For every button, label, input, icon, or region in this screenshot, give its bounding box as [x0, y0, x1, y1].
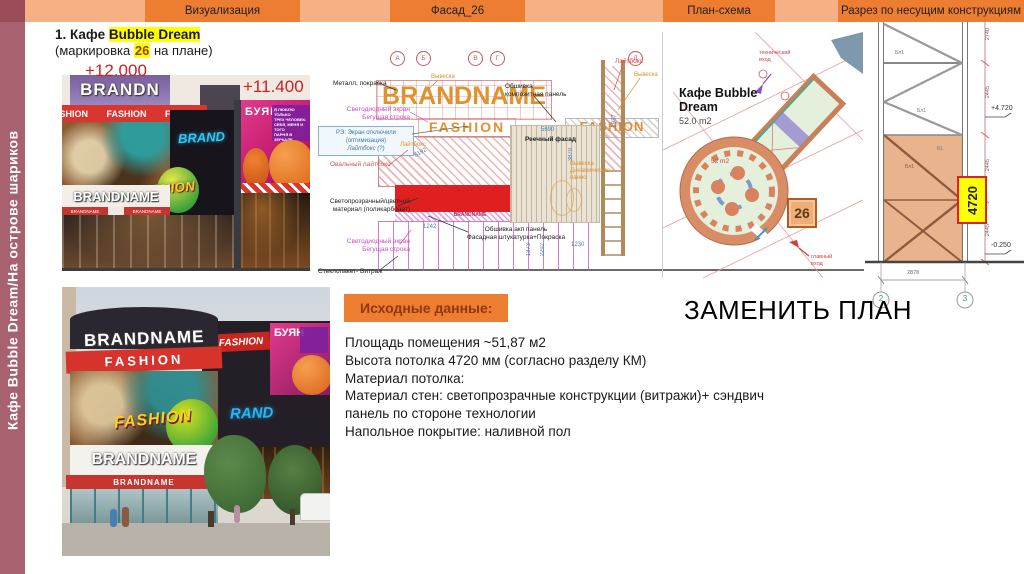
plan-drawing: Кафе Bubble Dream 52.0 m2 52 m2 26 техни… — [662, 32, 863, 278]
photo-brandname-top: BRANDNAME — [83, 327, 204, 349]
title-brand: Bubble Dream — [109, 27, 201, 42]
photo-person — [122, 507, 129, 527]
plan-marker-26: 26 — [787, 198, 817, 228]
section-member-label: Бл1 — [895, 50, 904, 56]
section-dim: 2445 — [985, 159, 991, 171]
section-dim-bottom: 2878 — [907, 270, 919, 276]
photo-top-band: BRANDNAME — [70, 307, 218, 349]
sidebar-title: Кафе Bubble Dream/На острове шариков — [0, 100, 25, 460]
plan-tech-entry-label: технический вход — [759, 50, 790, 63]
photo-buyan-billboard: БУЯН — [270, 323, 330, 395]
facade-drawing: А Б В Г Д BRANDNAME FASHION FASHION BRAN… — [318, 30, 660, 280]
section-dim: 2445 — [985, 224, 991, 236]
section-member-label: Б1 — [937, 146, 943, 152]
viz-awning — [241, 183, 310, 193]
photo-fashion-band: FASHION — [66, 346, 223, 373]
plan-label-line: технический — [759, 50, 790, 57]
title-number: 1. — [55, 27, 70, 42]
photo-brandname-strip: BRANDNAME — [113, 478, 174, 487]
info-line: Высота потолка 4720 мм (согласно разделу… — [345, 352, 764, 370]
replace-plan-note: ЗАМЕНИТЬ ПЛАН — [684, 295, 912, 326]
photo-van — [300, 493, 330, 521]
viz-red-strip: BRANDNAME — [62, 207, 108, 215]
plan-name-line: Кафе Bubble — [679, 86, 757, 100]
section-elev-top: +4.720 — [991, 105, 1013, 112]
subtitle-mark: 26 — [134, 43, 150, 58]
plan-graphics — [663, 32, 863, 278]
section-height-badge: 4720 — [957, 176, 987, 224]
sidebar-corner — [0, 0, 25, 22]
subtitle-pre: (маркировка — [55, 43, 134, 58]
photo-person — [110, 509, 117, 527]
info-line: Площадь помещения ~51,87 м2 — [345, 334, 764, 352]
info-text: Площадь помещения ~51,87 м2 Высота потол… — [345, 334, 764, 441]
plan-label-line: вход — [759, 57, 790, 64]
viz-food-screen — [62, 122, 170, 185]
section-member-label: Бл1 — [917, 108, 926, 114]
nav-tab-visualization[interactable]: Визуализация — [145, 0, 300, 22]
nav-tab-facade[interactable]: Фасад_26 — [390, 0, 525, 22]
photo-white-band: BRANDNAME — [70, 445, 218, 475]
photo-tree — [204, 435, 266, 513]
nav-tab-plan[interactable]: План-схема — [663, 0, 775, 22]
viz-red-strip: BRANDNAME — [124, 207, 170, 215]
viz-billboard: БУЯН Я ЛЮБЛЮ ТОЛЬКО ТРЕХ ЧЕЛОВЕК: СЕБЯ, … — [241, 100, 310, 193]
title-prefix: Кафе — [70, 27, 109, 42]
visualization-image: BRANDN FASHION FASHION FASHION BRAND FAS… — [62, 75, 310, 268]
slide: { "sidebar": {"label": "Кафе Bubble Drea… — [0, 0, 1024, 574]
viz-fashion-text: FASHION — [106, 109, 146, 119]
plan-label-line: вход — [811, 261, 832, 268]
photo-person — [234, 505, 240, 523]
viz-brandname-text: BRANDNAME — [73, 189, 158, 204]
facade-leader-lines — [318, 30, 660, 280]
section-height-value: 4720 — [965, 186, 980, 215]
section-graphics — [865, 14, 1024, 314]
nav-tab-label: План-схема — [687, 5, 751, 17]
section-member-label: Бл1 — [905, 164, 914, 170]
plan-main-entry-label: главный вход — [811, 254, 832, 267]
page-subtitle: (маркировка 26 на плане) — [55, 43, 213, 58]
plan-area-inner: 52 m2 — [711, 158, 729, 165]
viz-strip-text: BRANDNAME — [133, 209, 162, 214]
photo-fashion-text: FASHION — [104, 351, 183, 369]
viz-quote-box: Я ЛЮБЛЮ ТОЛЬКО ТРЕХ ЧЕЛОВЕК: СЕБЯ, МЕНЯ … — [272, 105, 310, 141]
info-line: панель по стороне технологии — [345, 405, 764, 423]
photo-character — [292, 355, 330, 395]
section-dim: 2740 — [985, 28, 991, 40]
viz-quote-line: Я ЛЮБЛЮ ТОЛЬКО — [274, 107, 310, 117]
photo-tree-trunk — [290, 509, 295, 525]
nav-tab-label: Визуализация — [185, 5, 260, 17]
viz-brand-neon: BRAND — [178, 129, 226, 146]
plan-room-name: Кафе Bubble Dream 52.0 m2 — [679, 86, 757, 128]
info-heading: Исходные данные: — [344, 294, 508, 322]
viz-quote-line: СЕБЯ, МЕНЯ И ТОГО — [274, 122, 310, 132]
viz-ground-shadow — [62, 268, 310, 271]
photo-cylinder: BRANDNAME FASHION FASHION BRANDNAME BRAN… — [70, 307, 218, 543]
elevation-label-high: +12.000 — [85, 61, 147, 81]
page-title: 1. Кафе Bubble Dream — [55, 27, 200, 42]
photo-brandname-mid: BRANDNAME — [92, 451, 197, 469]
viz-fashion-text: FASHION — [62, 109, 88, 119]
photo-render: FASHION БУЯН RAND BRANDNAME FASHION FASH… — [62, 287, 330, 556]
photo-ground — [62, 523, 330, 556]
viz-white-band: BRANDNAME — [62, 185, 170, 207]
info-line: Материал потолка: — [345, 370, 764, 388]
info-line: Напольное покрытие: наливной пол — [345, 423, 764, 441]
viz-billboard-pole — [234, 100, 241, 268]
section-elev-bottom: -0.250 — [991, 242, 1011, 249]
nav-tab-label: Фасад_26 — [431, 5, 484, 17]
viz-storefront — [62, 215, 240, 268]
photo-quote-box — [300, 327, 328, 353]
plan-name-line: Dream — [679, 100, 757, 114]
viz-cartoon-character-2 — [243, 148, 269, 188]
subtitle-post: на плане) — [150, 43, 212, 58]
viz-sign-top-text: BRANDN — [80, 80, 160, 100]
plan-area: 52.0 m2 — [679, 114, 757, 128]
photo-brand-neon: RAND — [230, 404, 274, 423]
photo-tree-trunk — [208, 511, 214, 527]
viz-storefront-right — [241, 193, 310, 268]
section-drawing: 2740 2445 2445 2445 +4.720 -0.250 4720 2… — [865, 14, 1024, 314]
elevation-label-low: +11.400 — [243, 77, 304, 97]
section-axis-3: 3 — [960, 294, 970, 303]
info-line: Материал стен: светопрозрачные конструкц… — [345, 387, 764, 405]
photo-red-band: BRANDNAME — [66, 475, 222, 489]
plan-label-line: главный — [811, 254, 832, 261]
viz-strip-text: BRANDNAME — [71, 209, 100, 214]
section-dim: 2445 — [985, 86, 991, 98]
